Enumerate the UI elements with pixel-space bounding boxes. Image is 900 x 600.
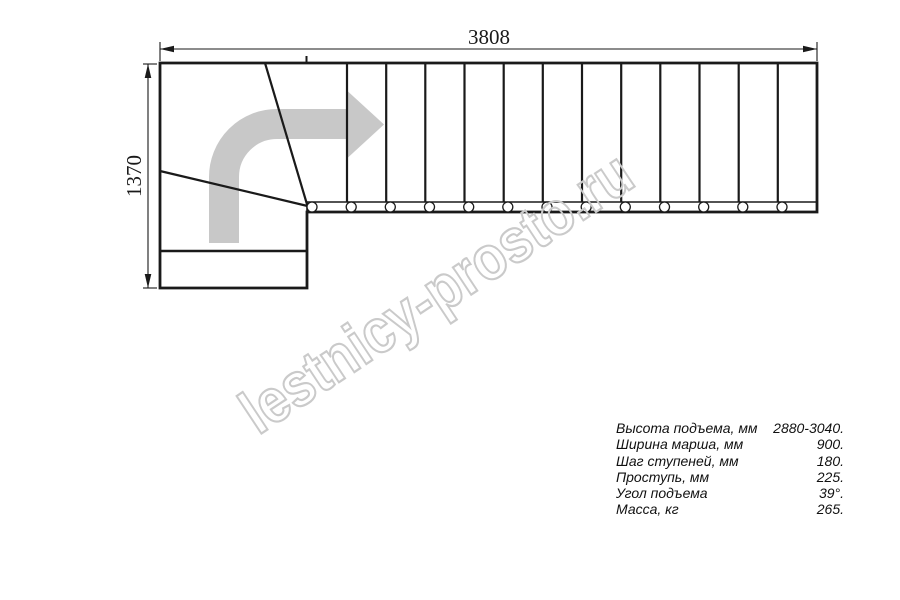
watermark-text: lestnicy-prosto.ru (228, 139, 646, 448)
spec-value: 39°. (819, 485, 844, 501)
dim-width-label: 3808 (468, 25, 510, 49)
spec-value: 265. (817, 501, 844, 517)
spec-label: Масса, кг (616, 501, 679, 517)
dimension-arrow-top (145, 64, 152, 78)
spec-row-going: Проступь, мм 225. (616, 469, 844, 485)
spec-row-width: Ширина марша, мм 900. (616, 436, 844, 452)
baluster-circle (699, 202, 709, 212)
spec-value: 180. (817, 453, 844, 469)
spec-row-step: Шаг ступеней, мм 180. (616, 453, 844, 469)
spec-label: Высота подъема, мм (616, 420, 758, 436)
baluster-circle (464, 202, 474, 212)
baluster-circle (307, 202, 317, 212)
spec-value: 225. (817, 469, 844, 485)
spec-row-height: Высота подъема, мм 2880-3040. (616, 420, 844, 436)
baluster-circle (346, 202, 356, 212)
dimension-arrow-right (803, 46, 817, 52)
width-dimension: 3808 (160, 25, 817, 61)
direction-arrow-head (348, 92, 384, 158)
spec-label: Ширина марша, мм (616, 436, 743, 452)
direction-arrow (224, 92, 384, 244)
spec-value: 900. (817, 436, 844, 452)
spec-row-angle: Угол подъема 39°. (616, 485, 844, 501)
spec-value: 2880-3040. (773, 420, 844, 436)
dimension-arrow-left (160, 46, 174, 52)
dim-height-label: 1370 (122, 155, 146, 197)
spec-label: Угол подъема (616, 485, 708, 501)
baluster-circle (425, 202, 435, 212)
baluster-circle (738, 202, 748, 212)
direction-arrow-body (224, 124, 348, 243)
baluster-circle (385, 202, 395, 212)
stair-drawing-page: 3808 1370 lestnicy-prosto.ru Высота подъ… (0, 0, 900, 600)
spec-label: Проступь, мм (616, 469, 709, 485)
spec-label: Шаг ступеней, мм (616, 453, 739, 469)
baluster-circle (777, 202, 787, 212)
spec-table: Высота подъема, мм 2880-3040. Ширина мар… (616, 420, 844, 518)
dimension-arrow-bottom (145, 274, 152, 288)
baluster-circle (660, 202, 670, 212)
height-dimension: 1370 (122, 64, 157, 288)
spec-row-mass: Масса, кг 265. (616, 501, 844, 517)
